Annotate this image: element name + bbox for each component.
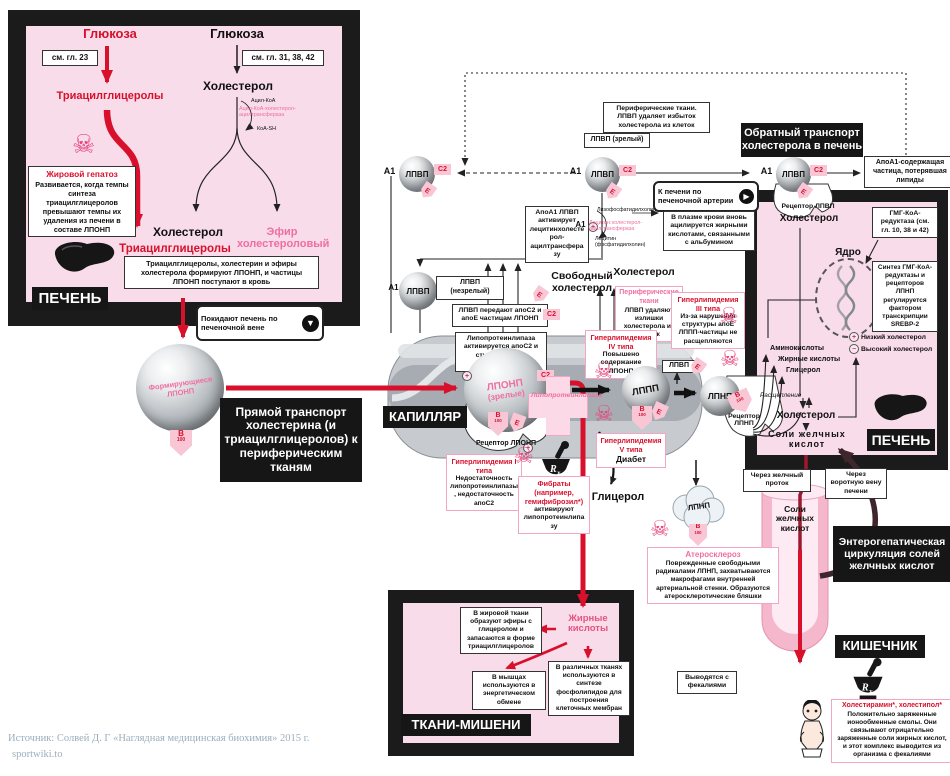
adipose-box: В жировой ткани образуют эфиры с глицеро… [460, 607, 542, 654]
skull-icon: ☠ [72, 131, 95, 157]
hdl-small-box: ЛПВП [662, 360, 696, 373]
apo-c2-tag: С2 [619, 165, 636, 176]
exit-text: Покидают печень по печеночной вене [201, 314, 299, 332]
membranes-box: В различных тканях используются в синтез… [548, 661, 630, 716]
free-cholesterol-label: Свободный холестерол [551, 271, 613, 294]
bile-salts-tube-label: Соли желчных кислот [767, 505, 823, 533]
via-bile-duct-box: Через желчный проток [743, 469, 811, 492]
down-arrow-icon: ▼ [302, 315, 319, 332]
triacylglycerols-label-2: Триацилглицеролы [107, 243, 243, 256]
fatty-hepatosis-body: Развивается, когда темпы синтеза триацил… [35, 180, 128, 234]
amino-acids-label: Аминокислоты [770, 344, 840, 352]
intestine-title: КИШЕЧНИК [835, 635, 925, 658]
glycerol-label-liver: Глицерол [786, 366, 836, 374]
cholesteryl-ester-label: Эфир холестероловый [237, 226, 327, 250]
nucleus-label: Ядро [831, 247, 865, 258]
hyperlipidemia-5-box: Гиперлипидемия V типа Диабет [596, 433, 666, 468]
forming-vldl-sphere: Формирующиеся ЛПОНП [136, 344, 224, 432]
bile-salts-label-liver: Соли желчных кислот [760, 430, 854, 450]
skull-icon: ☠ [594, 360, 614, 382]
forming-vldl-label: Формирующиеся ЛПОНП [148, 375, 212, 401]
glycerol-label: Глицерол [588, 491, 648, 503]
apo-a1-tag: А1 [758, 167, 775, 177]
immature-hdl-box: ЛПВП (незрелый) [436, 276, 504, 300]
apo-c2-tag: С2 [810, 165, 827, 176]
cholesterol-label-1: Холестерол [197, 80, 279, 93]
muscle-box: В мышцах используются в энергетическом о… [472, 671, 546, 710]
srebp-box: Синтез ГМГ-КоА-редуктазы и рецепторов ЛП… [872, 261, 938, 332]
right-liver-title: ПЕЧЕНЬ [867, 429, 935, 451]
feces-box: Выводятся с фекалиями [677, 671, 737, 694]
exit-via-hepatic-vein-box: Покидают печень по печеночной вене ▼ [196, 305, 324, 341]
to-liver-artery-box: К печени по печеночной артерии ▶ [653, 181, 759, 212]
hdl-receptor-label: Рецептор ЛПВП [779, 203, 837, 210]
hdl-transfer-box: ЛПВП передают апоС2 и апоЕ частицам ЛПОН… [452, 304, 548, 327]
lcat-activation-box: АпоА1 ЛПВП активирует лецитинхолестерол-… [525, 206, 589, 263]
peripheral-tissues-top-box: Периферические ткани. ЛПВП удаляет избыт… [603, 102, 710, 133]
plus-icon: + [849, 332, 859, 342]
apo-a1-tag: А1 [573, 221, 588, 230]
liver-icon [872, 390, 930, 430]
fatty-acids-label-liver: Жирные кислоты [778, 355, 852, 363]
right-arrow-icon: ▶ [739, 189, 754, 204]
apo-a1-tag: А1 [567, 167, 584, 177]
person-icon [792, 700, 832, 762]
skull-icon: ☠ [719, 305, 739, 327]
via-portal-vein-box: Через воротную вену печени [825, 468, 887, 499]
lysophosphatidylcholine-label: Лизофосфатидилхолин [597, 207, 639, 213]
diagram-canvas: Глюкоза см. гл. 23 Триацилглицеролы ☠ Жи… [0, 0, 950, 776]
capillary-title: КАПИЛЛЯР [383, 406, 467, 428]
cholesterol-label-liver-mid: Холестерол [770, 410, 842, 421]
artery-text: К печени по печеночной артерии [658, 188, 736, 206]
skull-icon: ☠ [594, 403, 614, 425]
source-attribution: Источник: Солвей Д. Г «Наглядная медицин… [8, 733, 448, 744]
plasma-acylation-box: В плазме крови вновь ацилируется жирными… [663, 211, 755, 251]
reverse-transport-title: Обратный транспорт холестерола в печень [741, 123, 863, 157]
vldl-mature-label: ЛПОНП(зрелые) [486, 377, 526, 402]
fatty-hepatosis-title: Жировой гепатоз [32, 169, 132, 180]
atherosclerosis-box: Атеросклероз Поврежденные свободными рад… [647, 547, 779, 604]
plus-icon: + [462, 371, 472, 381]
minus-icon: − [849, 344, 859, 354]
skull-icon: ☠ [650, 518, 670, 540]
apo-c2-tag: С2 [543, 309, 560, 320]
cholesterol-label-liver-top: Холестерол [773, 213, 845, 224]
apo-a1-tag: А1 [381, 167, 398, 177]
acat-enzyme-label: Ацил-КоА-холестерол-ацилтрансфераза [239, 106, 311, 118]
source-site: sportwiki.to [12, 749, 132, 760]
low-cholesterol-note: + Низкий холестерол [849, 332, 944, 342]
coa-sh-label: КоА-SH [257, 126, 293, 132]
mature-hdl-box: ЛПВП (зрелый) [584, 133, 650, 148]
skull-icon: ☠ [514, 445, 534, 467]
cleavage-label: Расщепление [760, 392, 798, 399]
ref-chapter-23: см. гл. 23 [42, 50, 98, 66]
high-cholesterol-note: − Высокий холестерол [849, 344, 944, 354]
apo-c2-tag: С2 [434, 164, 451, 175]
hdl-immature-sphere: ЛПВП [399, 272, 437, 310]
ldl-receptor-label: Рецептор ЛПНП [724, 413, 764, 428]
ref-chapter-31-38-42: см. гл. 31, 38, 42 [242, 50, 324, 66]
enterohepatic-box: Энтерогепатическая циркуляция солей желч… [833, 526, 950, 582]
lecithin-label: Лецитин (фосфатидилхолин) [595, 236, 647, 248]
cholesterol-label-2: Холестерол [147, 226, 229, 239]
cholesterol-label-mid: Холестерол [611, 267, 677, 279]
vldl-formation-note: Триацилглицеролы, холестерин и эфиры хол… [124, 256, 319, 289]
hmg-coa-reductase-box: ГМГ-КоА-редуктаза (см. гл. 10, 38 и 42) [872, 207, 938, 238]
acyl-coa-label: Ацил-КоА [251, 98, 291, 104]
fatty-hepatosis-box: Жировой гепатоз Развивается, когда темпы… [28, 166, 136, 237]
direct-transport-box: Прямой транспорт холестерина (и триацилг… [220, 398, 362, 482]
svg-text:R: R [549, 464, 557, 475]
liver-icon [52, 238, 118, 282]
glucose-label-left: Глюкоза [60, 27, 160, 41]
glucose-label-right: Глюкоза [201, 27, 273, 41]
hyperlipidemia-1-box: Гиперлипидемия I типа Недостаточность ли… [446, 454, 522, 511]
svg-text:x: x [868, 687, 873, 695]
resins-box: Холестирамин*, холестипол* Положительно … [831, 699, 950, 763]
triacylglycerols-label-1: Триацилглицеролы [44, 90, 176, 102]
apo-a1-tag: А1 [386, 284, 401, 293]
skull-icon: ☠ [720, 348, 740, 370]
apoa1-particle-box: АпоА1-содержащая частица, потерявшая лип… [864, 156, 950, 188]
fatty-acids-label-tissues: Жирные кислоты [556, 614, 620, 635]
left-liver-title: ПЕЧЕНЬ [32, 287, 108, 310]
svg-text:R: R [861, 682, 869, 693]
fibrates-box: Фибраты (например, гемифиброзил*) активи… [518, 476, 590, 534]
lipoprotein-lipase-label: Липопротеинлипаза [531, 392, 583, 400]
lcat-enzyme-label: Лецитин:холестерол-ацилтрансфераза [589, 220, 651, 232]
